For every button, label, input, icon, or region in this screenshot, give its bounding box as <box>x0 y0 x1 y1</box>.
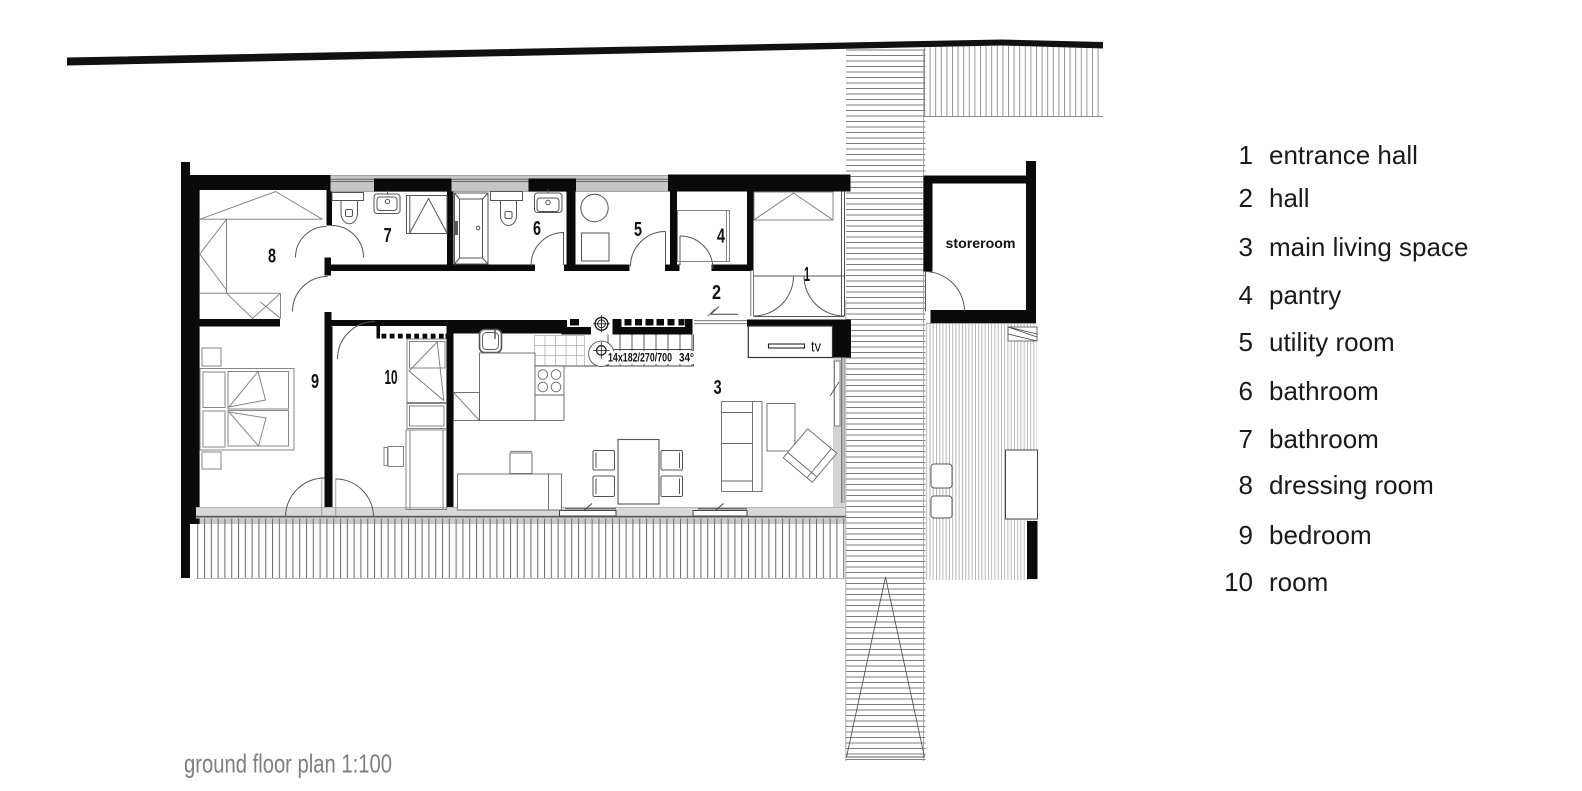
svg-text:3: 3 <box>714 377 722 399</box>
svg-text:7: 7 <box>1239 424 1253 454</box>
svg-text:3: 3 <box>1239 232 1253 262</box>
svg-text:5: 5 <box>634 219 642 241</box>
svg-text:6: 6 <box>1239 376 1253 406</box>
svg-text:8: 8 <box>1239 470 1253 500</box>
svg-text:2: 2 <box>1239 183 1253 213</box>
svg-text:34°: 34° <box>679 353 694 365</box>
svg-text:entrance hall: entrance hall <box>1269 140 1418 170</box>
svg-text:dressing room: dressing room <box>1269 470 1434 500</box>
svg-text:10: 10 <box>1224 567 1253 597</box>
svg-text:9: 9 <box>1239 520 1253 550</box>
svg-text:1: 1 <box>1239 140 1253 170</box>
svg-text:10: 10 <box>385 367 398 389</box>
svg-text:8: 8 <box>268 246 276 268</box>
svg-text:4: 4 <box>1239 280 1253 310</box>
svg-text:14x182/270/700: 14x182/270/700 <box>608 353 672 365</box>
svg-text:room: room <box>1269 567 1328 597</box>
svg-text:bathroom: bathroom <box>1269 376 1379 406</box>
svg-text:7: 7 <box>384 225 392 247</box>
svg-text:pantry: pantry <box>1269 280 1341 310</box>
svg-text:2: 2 <box>712 282 721 304</box>
svg-text:5: 5 <box>1239 327 1253 357</box>
svg-text:ground floor plan 1:100: ground floor plan 1:100 <box>184 749 392 779</box>
svg-text:utility room: utility room <box>1269 327 1395 357</box>
svg-text:hall: hall <box>1269 183 1309 213</box>
svg-text:9: 9 <box>311 371 319 393</box>
svg-text:tv: tv <box>811 338 821 355</box>
svg-text:1: 1 <box>804 264 810 286</box>
svg-text:bedroom: bedroom <box>1269 520 1372 550</box>
svg-text:main living space: main living space <box>1269 232 1468 262</box>
svg-text:bathroom: bathroom <box>1269 424 1379 454</box>
svg-text:storeroom: storeroom <box>946 235 1016 251</box>
svg-text:4: 4 <box>717 226 726 248</box>
svg-text:6: 6 <box>533 218 541 240</box>
